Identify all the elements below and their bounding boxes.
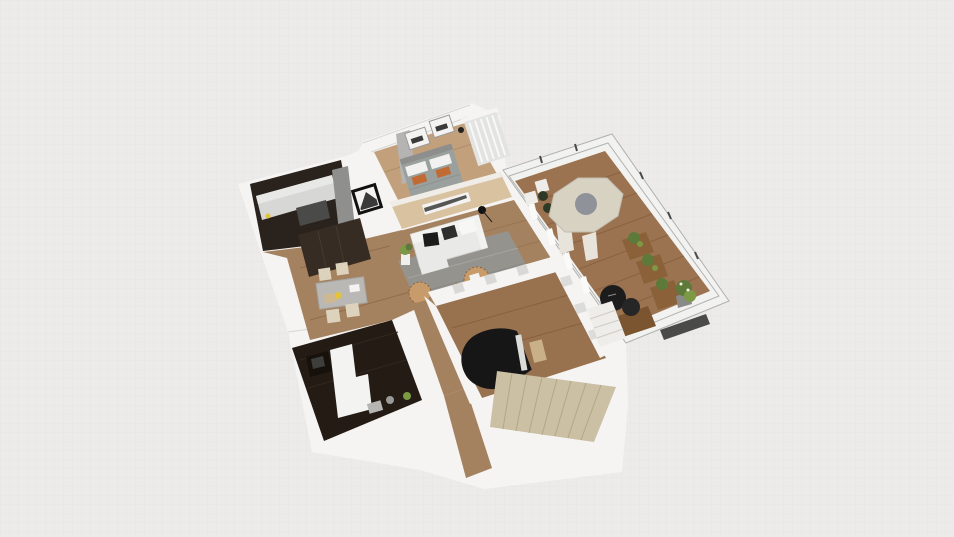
kitchen-item-yellow[interactable] xyxy=(266,214,271,219)
office-cushion xyxy=(386,396,394,404)
round-lounge-chair[interactable] xyxy=(622,298,640,316)
dining-chair[interactable] xyxy=(345,303,360,318)
floor-lamp[interactable] xyxy=(458,127,464,133)
planter-greenery xyxy=(642,254,654,266)
dark-plant xyxy=(538,191,548,201)
dining-chair[interactable] xyxy=(335,262,349,276)
table-tray xyxy=(324,293,337,304)
plant-flower xyxy=(687,289,690,292)
patio-table-centerpiece[interactable] xyxy=(575,193,597,215)
planter-greenery xyxy=(656,278,668,290)
dining-chair[interactable] xyxy=(318,267,332,281)
plant-pot[interactable] xyxy=(401,254,410,265)
planter-greenery xyxy=(637,241,643,247)
planter-greenery xyxy=(652,265,658,271)
plant-foliage xyxy=(684,290,696,302)
floorplan-stage xyxy=(0,0,954,537)
dining-chair[interactable] xyxy=(326,309,341,324)
office-plant[interactable] xyxy=(403,392,411,400)
table-tablet xyxy=(349,283,361,292)
floorplan-3d-viewport[interactable] xyxy=(0,0,954,537)
plant-flower xyxy=(680,283,683,286)
sofa-pillow-black xyxy=(423,232,440,247)
plant-foliage xyxy=(406,244,413,251)
